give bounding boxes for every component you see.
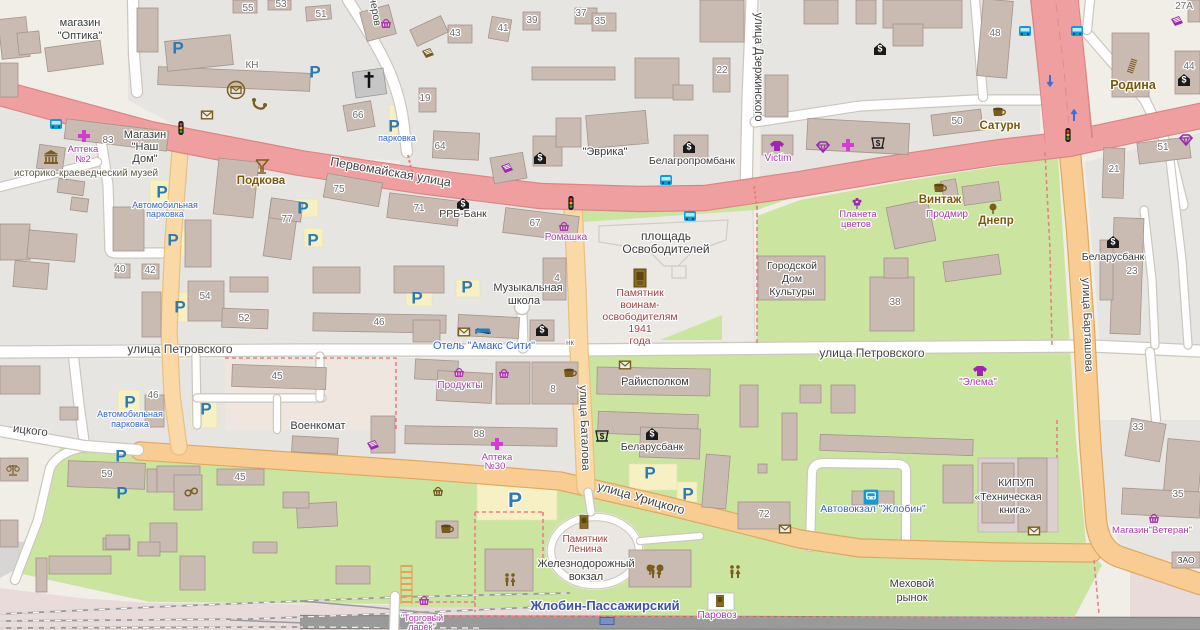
- svg-text:Беларусбанк: Беларусбанк: [1082, 251, 1145, 263]
- svg-text:освободителям: освободителям: [602, 311, 677, 323]
- svg-text:37: 37: [575, 8, 587, 19]
- svg-text:"Оптика": "Оптика": [58, 30, 103, 42]
- svg-text:50: 50: [951, 116, 963, 127]
- svg-text:Освободителей: Освободителей: [622, 242, 709, 256]
- svg-text:Городской: Городской: [767, 260, 817, 272]
- svg-text:воинам-: воинам-: [620, 299, 660, 311]
- svg-text:Днепр: Днепр: [978, 215, 1014, 227]
- svg-text:цветов: цветов: [841, 219, 871, 230]
- svg-text:41: 41: [497, 23, 509, 34]
- svg-text:Ленина: Ленина: [568, 544, 603, 555]
- svg-text:46: 46: [373, 317, 385, 328]
- svg-text:книга»: книга»: [999, 504, 1031, 516]
- svg-text:Культуры: Культуры: [769, 286, 814, 298]
- svg-text:P: P: [508, 489, 522, 512]
- svg-text:23: 23: [1126, 266, 1138, 277]
- svg-text:парковка: парковка: [378, 133, 416, 143]
- svg-text:улица Петровского: улица Петровского: [127, 342, 232, 356]
- svg-text:Магазин: Магазин: [124, 129, 166, 141]
- svg-text:улица Дзержинского: улица Дзержинского: [752, 12, 764, 121]
- svg-text:ЗАО: ЗАО: [1177, 555, 1195, 565]
- svg-text:35: 35: [594, 16, 606, 27]
- svg-text:Меховой: Меховой: [890, 578, 935, 590]
- svg-text:48: 48: [989, 28, 1001, 39]
- svg-text:51: 51: [315, 9, 327, 20]
- svg-text:КН: КН: [245, 60, 258, 71]
- svg-text:нк: нк: [566, 338, 574, 347]
- svg-text:ларёк": ларёк": [408, 622, 435, 630]
- svg-text:77: 77: [281, 214, 293, 225]
- svg-text:Магазин"Ветеран": Магазин"Ветеран": [1112, 525, 1192, 536]
- svg-text:27А: 27А: [1175, 1, 1193, 12]
- svg-text:1941: 1941: [628, 323, 652, 335]
- svg-text:Паровоз: Паровоз: [697, 610, 737, 621]
- svg-text:67: 67: [529, 218, 541, 229]
- svg-text:"Эврика": "Эврика": [583, 146, 628, 158]
- svg-text:46: 46: [147, 390, 159, 401]
- svg-text:рынок: рынок: [896, 592, 927, 604]
- svg-text:Военкомат: Военкомат: [290, 420, 345, 432]
- svg-text:Ромашка: Ромашка: [545, 232, 588, 243]
- svg-text:Продукты: Продукты: [437, 380, 482, 391]
- svg-text:улица Петровского: улица Петровского: [819, 346, 924, 360]
- svg-text:54: 54: [199, 291, 211, 302]
- svg-text:52: 52: [238, 313, 250, 324]
- svg-text:Продмир: Продмир: [926, 209, 968, 220]
- svg-text:59: 59: [101, 469, 113, 480]
- svg-text:Жлобин-Пассажирский: Жлобин-Пассажирский: [529, 598, 679, 613]
- svg-text:21: 21: [1108, 164, 1120, 175]
- svg-text:Дом": Дом": [132, 153, 157, 165]
- svg-text:88: 88: [473, 429, 485, 440]
- svg-text:43: 43: [449, 28, 461, 39]
- svg-text:№2: №2: [75, 154, 90, 165]
- svg-text:40: 40: [114, 264, 126, 275]
- svg-text:историко-краеведческий музей: историко-краеведческий музей: [14, 168, 158, 179]
- svg-text:45: 45: [271, 371, 283, 382]
- svg-text:75: 75: [333, 184, 345, 195]
- svg-text:66: 66: [352, 110, 364, 121]
- svg-text:Райисполком: Райисполком: [621, 376, 689, 388]
- svg-text:83: 83: [102, 135, 114, 146]
- svg-text:Винтаж: Винтаж: [919, 194, 962, 206]
- svg-text:19: 19: [419, 93, 431, 104]
- svg-text:КИПУП: КИПУП: [998, 477, 1033, 489]
- svg-text:магазин: магазин: [60, 17, 101, 29]
- svg-text:Белагропромбанк: Белагропромбанк: [649, 155, 736, 167]
- svg-text:42: 42: [144, 265, 156, 276]
- svg-text:Беларусбанк: Беларусбанк: [621, 441, 684, 453]
- svg-text:«Техническая: «Техническая: [974, 491, 1041, 503]
- svg-text:Дом: Дом: [782, 273, 802, 285]
- svg-text:51: 51: [1157, 142, 1169, 153]
- svg-text:вокзал: вокзал: [569, 571, 603, 583]
- svg-text:8: 8: [550, 384, 556, 395]
- svg-text:Железнодорожный: Железнодорожный: [537, 558, 634, 570]
- svg-text:Подкова: Подкова: [237, 175, 286, 187]
- svg-text:4: 4: [554, 273, 560, 284]
- svg-text:площадь: площадь: [641, 229, 691, 243]
- svg-text:Родина: Родина: [1110, 78, 1157, 92]
- svg-text:школа: школа: [508, 295, 541, 307]
- svg-text:Отель "Амакс Сити": Отель "Амакс Сити": [433, 340, 535, 352]
- svg-text:71: 71: [413, 203, 425, 214]
- svg-text:Памятник: Памятник: [616, 287, 664, 299]
- svg-text:"Элема": "Элема": [959, 377, 997, 388]
- svg-text:Сатурн: Сатурн: [980, 120, 1021, 132]
- svg-text:38: 38: [889, 297, 901, 308]
- svg-text:33: 33: [1132, 422, 1144, 433]
- svg-text:Автомобильная: Автомобильная: [97, 409, 163, 419]
- svg-text:"Наш: "Наш: [132, 141, 159, 153]
- svg-text:45: 45: [234, 472, 246, 483]
- svg-text:44: 44: [1183, 61, 1195, 72]
- svg-text:39: 39: [526, 15, 538, 26]
- svg-text:55: 55: [242, 3, 254, 14]
- svg-text:парковка: парковка: [146, 209, 184, 219]
- svg-text:35: 35: [1172, 489, 1184, 500]
- svg-text:Музыкальная: Музыкальная: [493, 282, 562, 294]
- svg-text:парковка: парковка: [111, 419, 149, 429]
- svg-text:года: года: [629, 335, 650, 347]
- svg-text:53: 53: [275, 0, 287, 10]
- svg-text:Victim: Victim: [764, 153, 791, 164]
- svg-text:72: 72: [758, 509, 770, 520]
- svg-text:РРБ-Банк: РРБ-Банк: [439, 208, 487, 220]
- svg-text:22: 22: [716, 65, 728, 76]
- svg-text:Автовокзал "Жлобин": Автовокзал "Жлобин": [820, 503, 926, 515]
- svg-text:№30: №30: [485, 461, 506, 472]
- svg-text:64: 64: [434, 141, 446, 152]
